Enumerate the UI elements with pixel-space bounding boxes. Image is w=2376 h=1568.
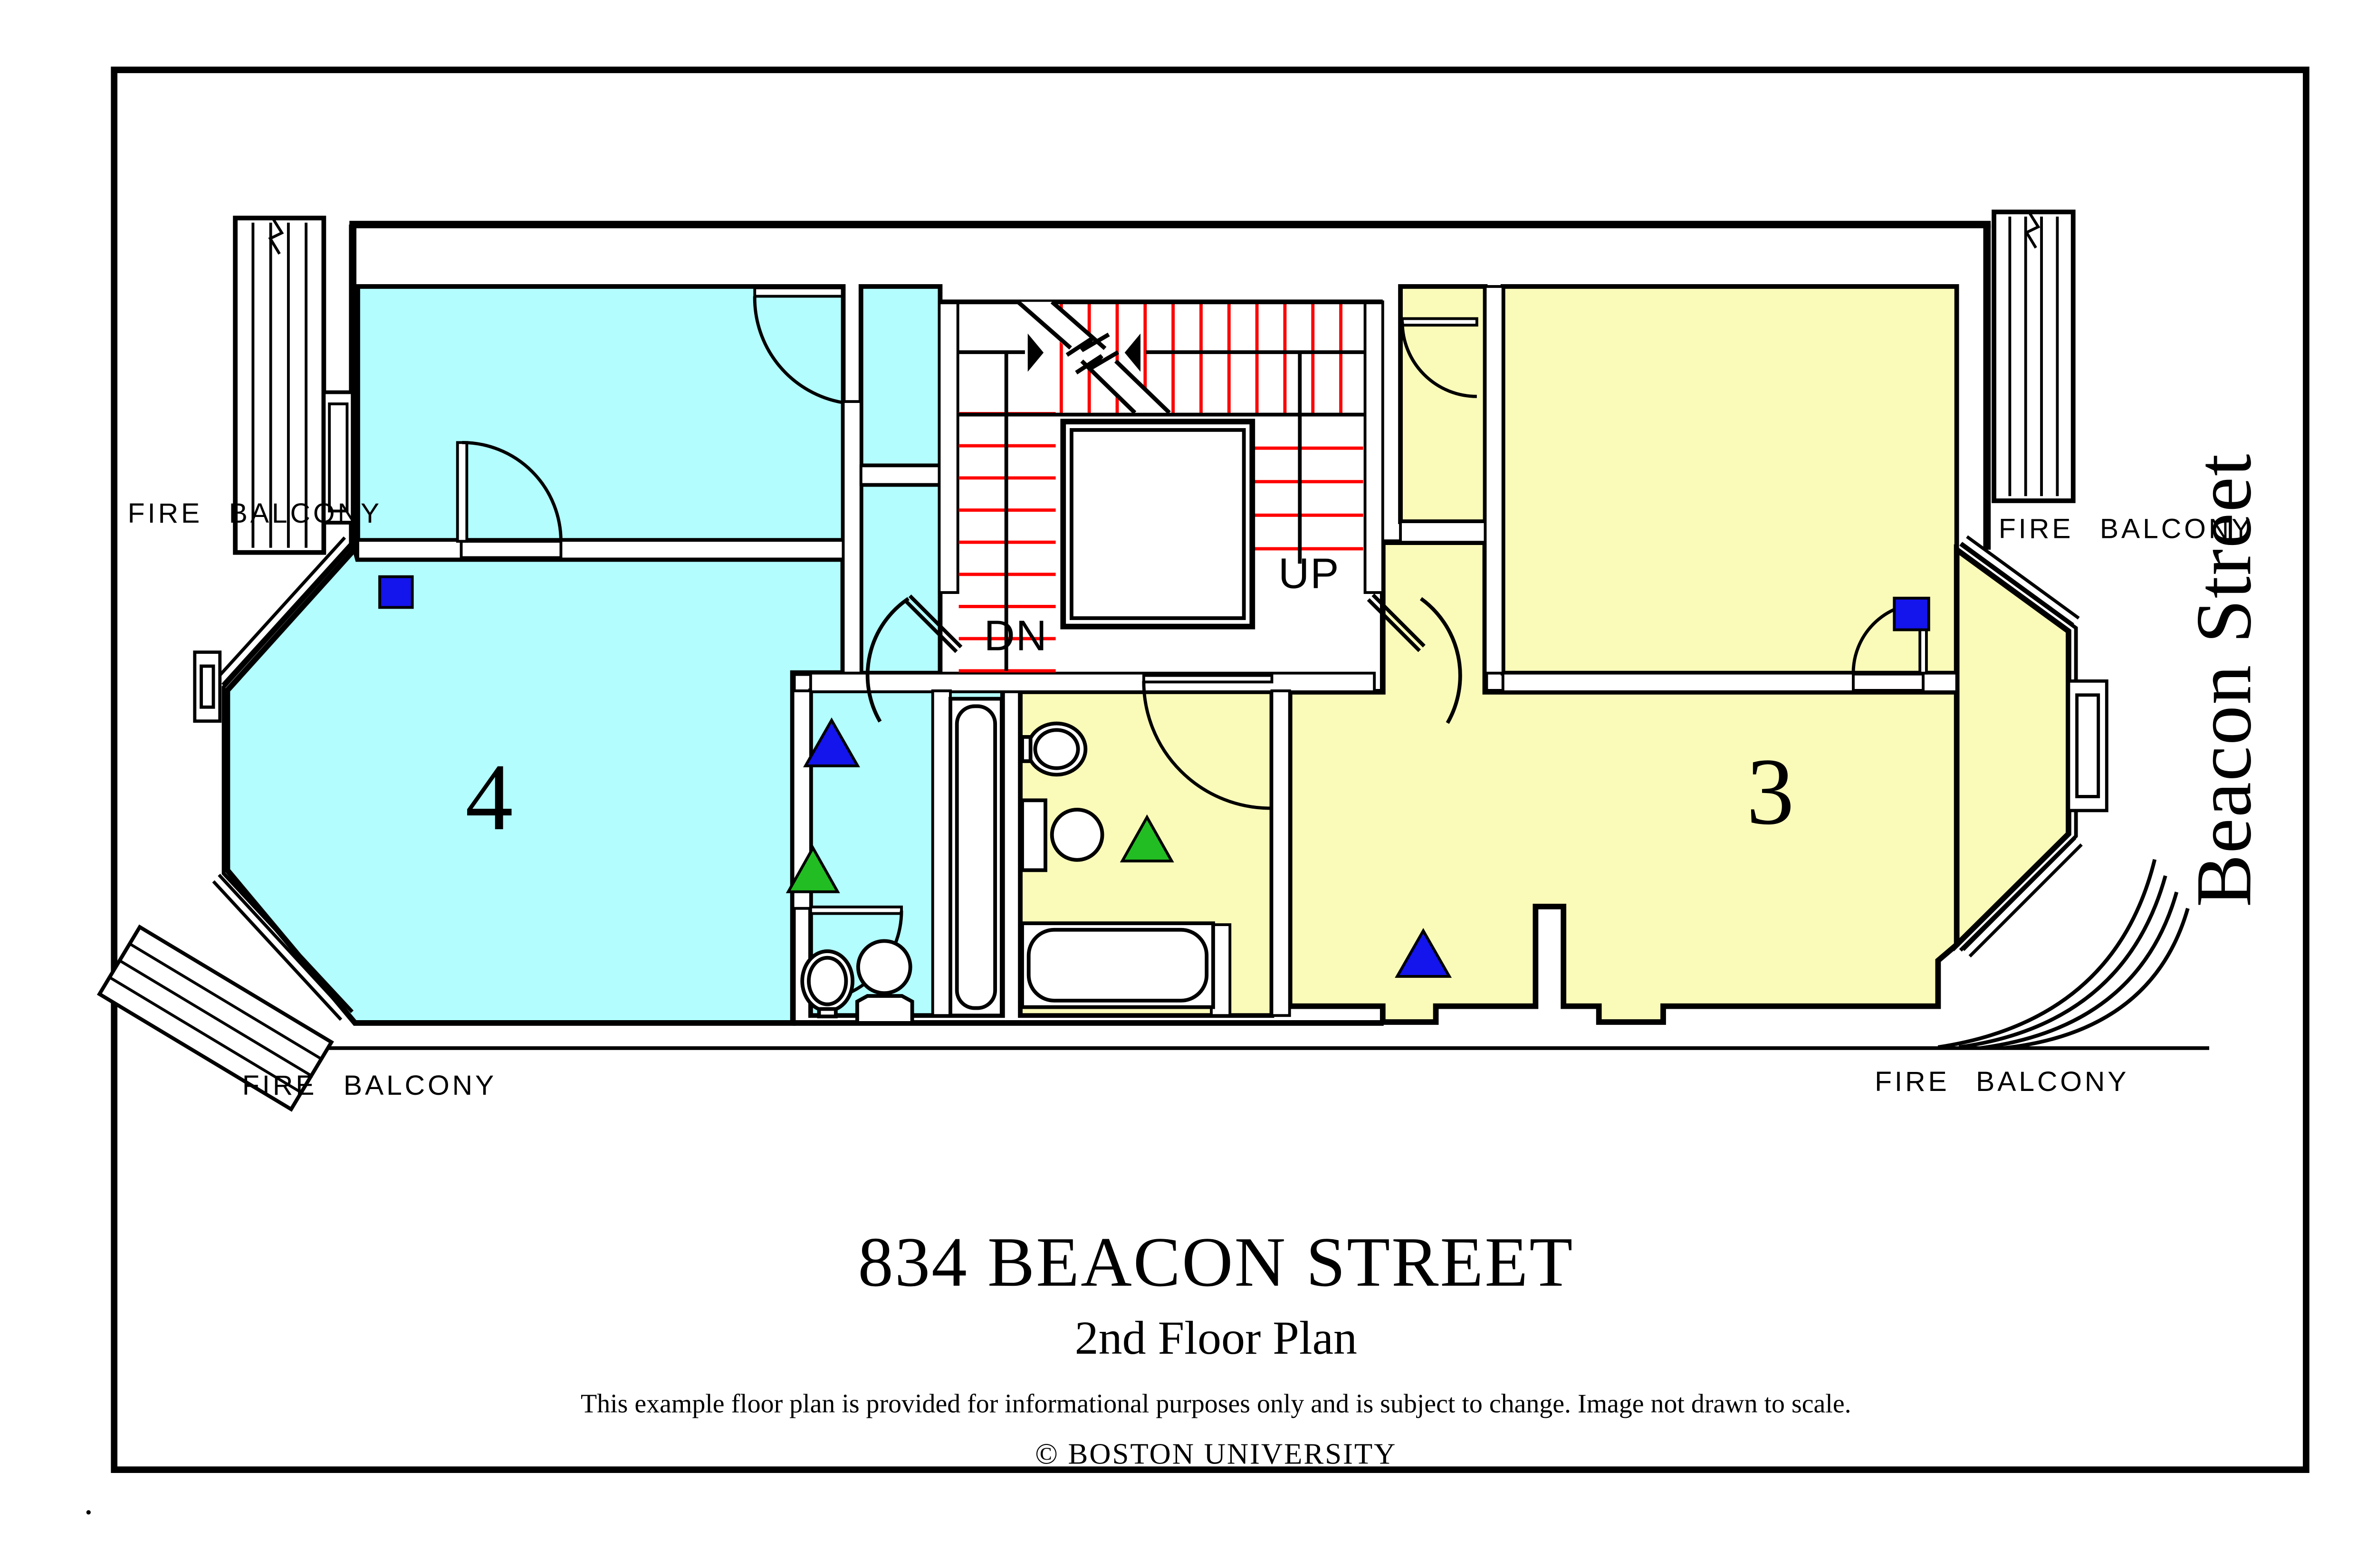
unit4-toilet-inner <box>809 958 846 1004</box>
stair-up-label: UP <box>1278 549 1340 597</box>
unit3-toilet-inner <box>1035 730 1078 768</box>
unit4-number-label: 4 <box>465 745 513 850</box>
fire-balcony-label-top-left: FIRE BALCONY <box>128 498 382 529</box>
floor-plan-page: UP DN <box>0 0 2376 1537</box>
unit4-front-room <box>358 287 843 540</box>
unit3-sink-pedestal <box>1022 800 1045 870</box>
unit3-bathtub-inner <box>1029 930 1207 1001</box>
stair-arrow-right-icon <box>1028 334 1044 372</box>
stair-down-label: DN <box>984 612 1048 660</box>
stair-arrow-left-icon <box>1125 334 1140 372</box>
unit3-front-room <box>1503 287 1957 673</box>
fire-balcony-top-right <box>1994 212 2073 501</box>
unit3-toilet-tank <box>1022 737 1031 761</box>
unit3-square-marker <box>1894 598 1929 630</box>
unit-3-area <box>1020 287 2069 1022</box>
fire-balcony-label-bottom-right: FIRE BALCONY <box>1875 1066 2129 1097</box>
plan-floor-subtitle: 2nd Floor Plan <box>1075 1311 1357 1364</box>
unit4-toilet-base <box>819 1009 836 1017</box>
floor-plan-drawing: UP DN <box>0 0 2376 1537</box>
unit4-sink-pedestal <box>857 996 912 1023</box>
street-name-label: Beacon Street <box>2180 453 2268 908</box>
plan-disclaimer-text: This example floor plan is provided for … <box>581 1389 1851 1419</box>
unit4-closet-a <box>861 287 940 466</box>
unit4-sink <box>858 941 910 993</box>
unit4-living-area <box>227 549 843 1023</box>
unit3-sink <box>1052 810 1102 860</box>
plan-copyright-text: © BOSTON UNIVERSITY <box>1035 1437 1397 1470</box>
unit4-bathtub-inner <box>957 706 995 1008</box>
plan-address-title: 834 BEACON STREET <box>858 1223 1574 1301</box>
fire-balcony-label-bottom-left: FIRE BALCONY <box>242 1070 497 1101</box>
stairwell: UP DN <box>939 302 1382 670</box>
page-stray-dot: . <box>84 1481 93 1522</box>
unit3-number-label: 3 <box>1746 739 1794 844</box>
elevator-shaft <box>1063 421 1252 626</box>
title-block: 834 BEACON STREET 2nd Floor Plan This ex… <box>581 1223 1851 1471</box>
unit4-square-marker <box>380 577 412 608</box>
